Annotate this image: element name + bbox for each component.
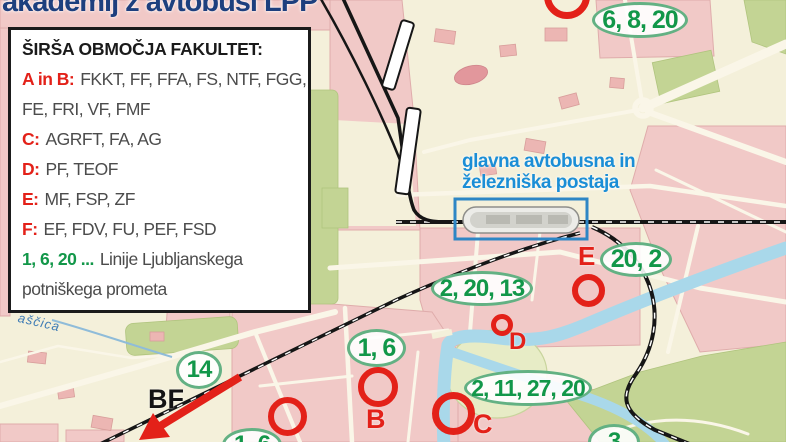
legend-zone-d: D: [22, 159, 39, 179]
legend-line-lpp2: potniškega prometa [22, 274, 298, 304]
bf-label: BF [148, 386, 184, 413]
station-label-line1: glavna avtobusna in [462, 151, 635, 172]
legend-line-c: C:AGRFT, FA, AG [22, 124, 298, 154]
bus-line-badge: 6, 8, 20 [592, 2, 688, 38]
location-ring-c [432, 392, 475, 435]
zone-letter-b: B [366, 406, 386, 433]
location-ring-e [572, 274, 605, 307]
station-label-line2: železniška postaja [462, 172, 635, 193]
legend-faculties: PF, TEOF [45, 159, 118, 179]
infographic-root: akademij z avtobusi LPP ŠIRŠA OBMOČJA FA… [0, 0, 786, 442]
legend-zone-e: E: [22, 189, 39, 209]
location-ring-b [358, 367, 398, 407]
legend-faculties: MF, FSP, ZF [45, 189, 135, 209]
bridge [432, 332, 452, 336]
bus-line-badge: 1, 6 [347, 329, 406, 367]
legend-line-d: D:PF, TEOF [22, 154, 298, 184]
station-label: glavna avtobusna in železniška postaja [462, 151, 635, 193]
zone-letter-c: C [473, 411, 493, 438]
location-ring [268, 397, 307, 436]
legend-line-e: E:MF, FSP, ZF [22, 184, 298, 214]
legend-box: ŠIRŠA OBMOČJA FAKULTET: A in B:FKKT, FF,… [8, 27, 311, 313]
legend-line-f: F:EF, FDV, FU, PEF, FSD [22, 214, 298, 244]
legend-zone-f: F: [22, 219, 38, 239]
legend-faculties: FKKT, FF, FFA, FS, NTF, FGG, [80, 69, 306, 89]
legend-line-lpp: 1, 6, 20 ...Linije Ljubljanskega [22, 244, 298, 274]
legend-zone-ab: A in B: [22, 69, 74, 89]
zone-letter-d: D [509, 330, 526, 354]
bus-line-badge: 2, 11, 27, 20 [464, 370, 592, 406]
legend-line-ab2: FE, FRI, VF, FMF [22, 94, 298, 124]
legend-lpp-lines: 1, 6, 20 ... [22, 249, 94, 269]
legend-line-ab: A in B:FKKT, FF, FFA, FS, NTF, FGG, [22, 64, 298, 94]
bus-line-badge: 20, 2 [600, 242, 672, 277]
zone-letter-e: E [578, 243, 595, 269]
legend-faculties: EF, FDV, FU, PEF, FSD [44, 219, 217, 239]
legend-heading: ŠIRŠA OBMOČJA FAKULTET: [22, 34, 298, 64]
station-platform [463, 207, 579, 233]
bus-line-badge: 2, 20, 13 [431, 271, 533, 306]
legend-faculties: AGRFT, FA, AG [45, 129, 161, 149]
legend-zone-c: C: [22, 129, 39, 149]
infographic-title: akademij z avtobusi LPP [2, 0, 317, 19]
legend-faculties: FE, FRI, VF, FMF [22, 99, 150, 119]
